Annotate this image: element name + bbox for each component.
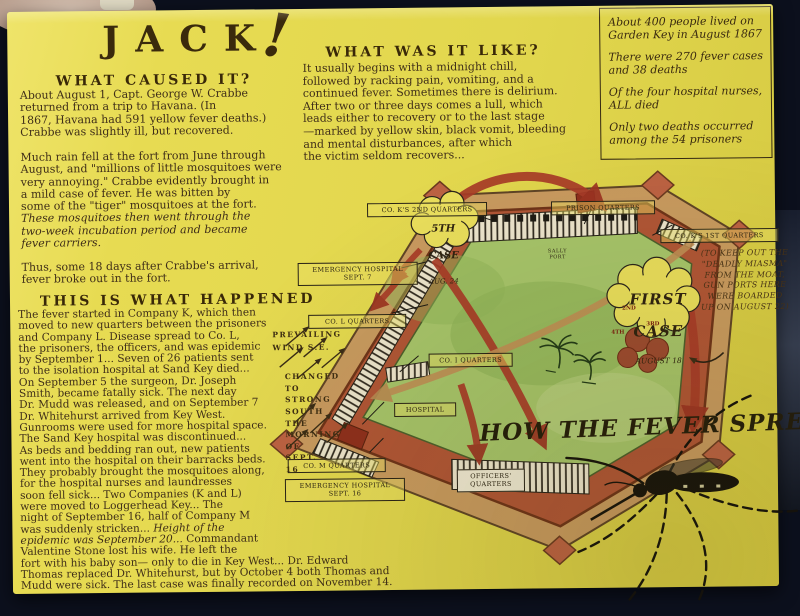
label-prison-quarters: PRISON QUARTERS: [551, 200, 655, 216]
fifth-case-line1: 5TH: [415, 224, 471, 235]
caused-paragraph-2-normal: Much rain fell at the fort from June thr…: [20, 148, 281, 213]
case-marker-4th: 4TH: [611, 330, 624, 336]
label-emergency-hospital-sept16: EMERGENCY HOSPITAL SEPT. 16: [285, 478, 405, 502]
happened-part-1: The fever started in Company K, which th…: [18, 306, 267, 535]
gun-ports-note: (TO KEEP OUT THE "DEADLY MIASMA" FROM TH…: [685, 248, 800, 314]
fifth-case-line3: AUG. 24: [416, 279, 472, 287]
label-emergency-hospital-sept7: EMERGENCY HOSPITAL SEPT. 7: [298, 262, 418, 286]
yellow-poster: JACK ! WHAT CAUSED IT? About August 1, C…: [7, 4, 779, 594]
fifth-case-cloud-text: 5TH CASE AUG. 24: [415, 207, 472, 303]
label-co-i-quarters: CO. I QUARTERS: [429, 353, 513, 368]
label-hospital: HOSPITAL: [394, 402, 456, 417]
fact-population: About 400 people lived on Garden Key in …: [608, 14, 764, 42]
wind-changed-note: CHANGED TO STRONG SOUTH THE MORNING OF S…: [285, 371, 341, 476]
like-paragraph: It usually begins with a midnight chill,…: [303, 60, 614, 164]
poster-title: JACK: [102, 17, 271, 61]
heading-what-was-it-like: WHAT WAS IT LIKE?: [325, 42, 540, 60]
first-case-line3: AUGUST 18: [617, 357, 701, 366]
facts-box: About 400 people lived on Garden Key in …: [599, 6, 773, 160]
wind-prevailing-note: PREVAILING WIND S.E.: [272, 329, 341, 355]
label-co-l-quarters: CO. L QUARTERS: [308, 314, 406, 329]
caused-paragraph-2-italic: These mosquitoes then went through the t…: [21, 210, 250, 250]
label-officers-quarters: OFFICERS' QUARTERS: [457, 469, 525, 493]
case-marker-3rd: 3RD: [646, 321, 659, 327]
sally-port-label: SALLY PORT: [539, 248, 575, 260]
photo-of-poster: { "poster": { "title": "JACK", "title_ba…: [0, 0, 800, 606]
fact-cases-deaths: There were 270 fever cases and 38 deaths: [608, 49, 764, 77]
fifth-case-line2: CASE: [416, 251, 472, 262]
case-marker-2nd: 2ND: [622, 305, 636, 311]
poster-title-exclamation: !: [259, 0, 294, 73]
label-co-k-1st-quarters: CO. K'S 1ST QUARTERS: [660, 228, 778, 244]
fact-prisoners: Only two deaths occurred among the 54 pr…: [609, 119, 765, 147]
paper-edge: [100, 0, 134, 10]
caused-paragraph-1: About August 1, Capt. George W. Crabbe r…: [20, 87, 330, 139]
fact-nurses: Of the four hospital nurses, ALL died: [609, 84, 765, 112]
